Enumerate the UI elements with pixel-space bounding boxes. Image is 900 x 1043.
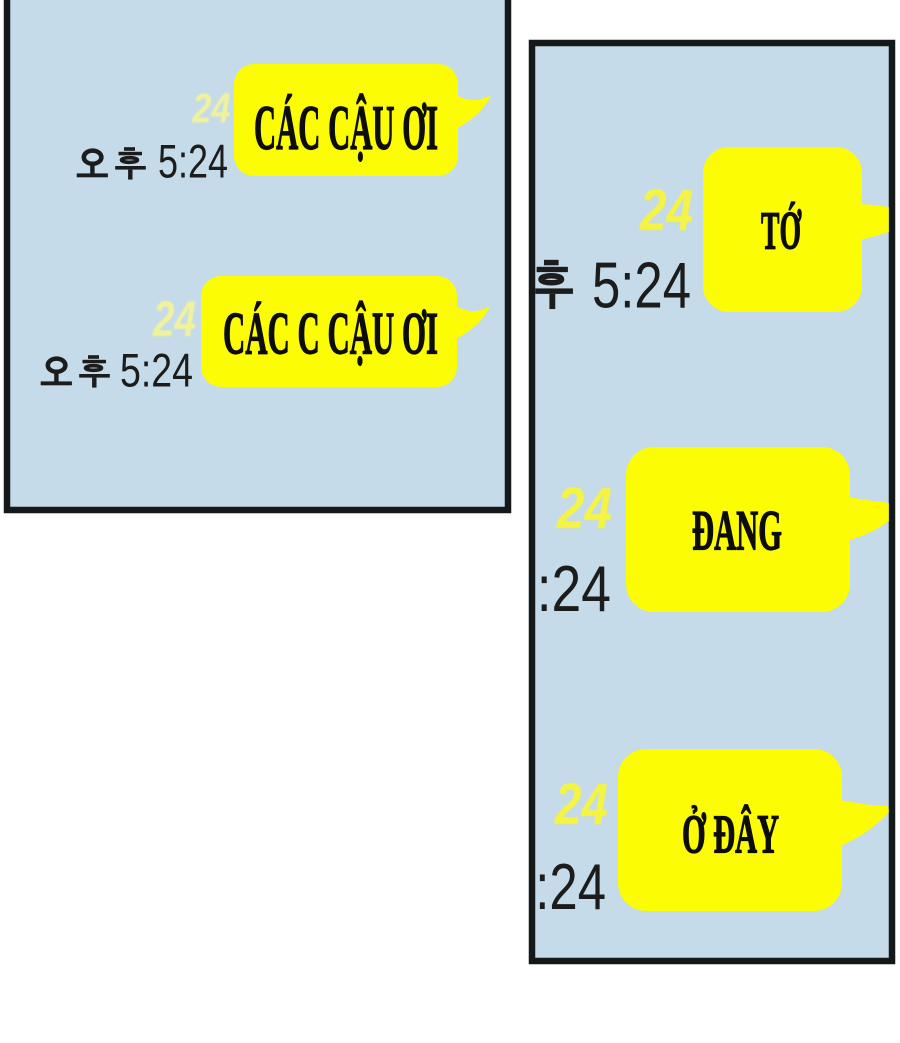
svg-text:5:24: 5:24 — [158, 135, 228, 188]
svg-text:ĐANG: ĐANG — [692, 500, 782, 563]
svg-text:24: 24 — [554, 772, 608, 837]
svg-text:24: 24 — [192, 85, 231, 132]
svg-text:Ở ĐÂY: Ở ĐÂY — [682, 804, 779, 865]
svg-text:TỚ: TỚ — [761, 201, 802, 261]
svg-text:24: 24 — [556, 476, 612, 541]
svg-text:24: 24 — [639, 178, 693, 243]
svg-text:CÁC C CẬU ƠI: CÁC C CẬU ƠI — [223, 301, 438, 367]
svg-text:24: 24 — [152, 291, 196, 347]
svg-text:5:24: 5:24 — [120, 344, 193, 397]
svg-text:5:24: 5:24 — [592, 249, 691, 322]
svg-text:CÁC CẬU ƠI: CÁC CẬU ƠI — [254, 92, 438, 163]
